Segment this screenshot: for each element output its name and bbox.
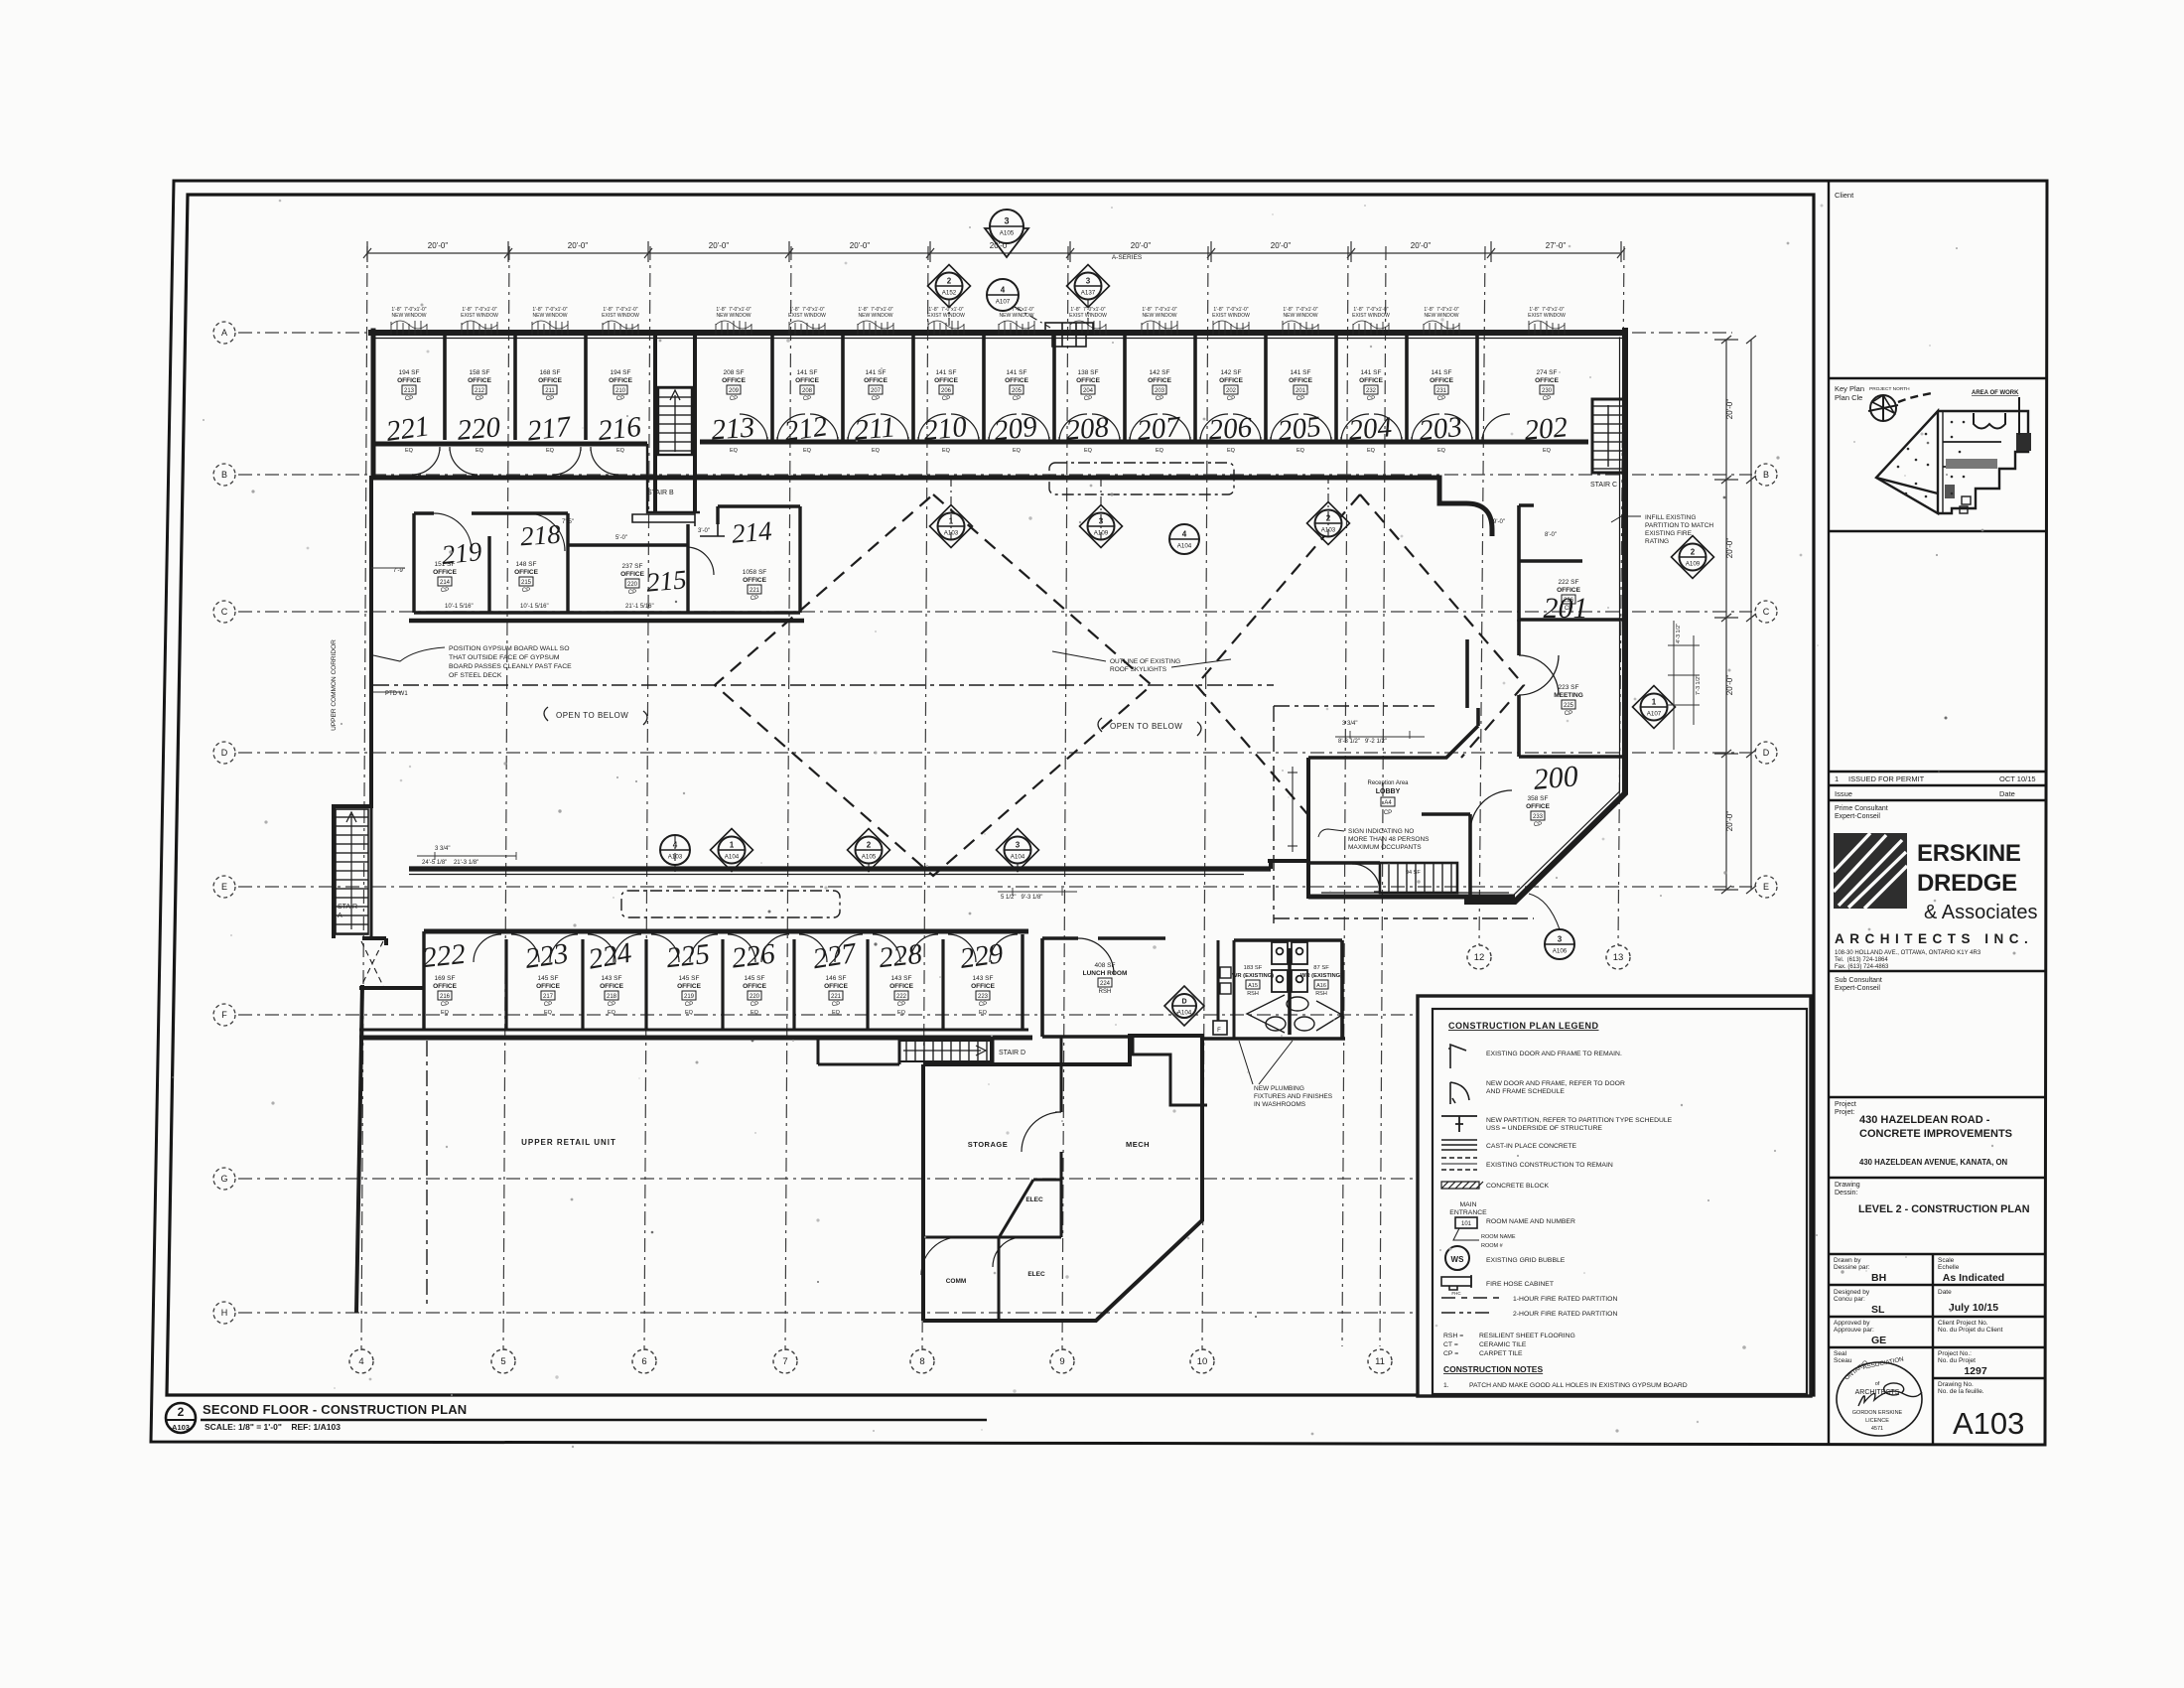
svg-text:OPEN TO BELOW: OPEN TO BELOW [1110,722,1182,731]
svg-text:H: H [221,1308,228,1318]
svg-text:430 HAZELDEAN AVENUE, KANATA,: 430 HAZELDEAN AVENUE, KANATA, ON [1859,1158,2008,1167]
svg-text:EQ: EQ [832,1010,841,1016]
svg-text:220: 220 [627,582,638,588]
svg-text:NEW DOOR AND FRAME, REFER TO D: NEW DOOR AND FRAME, REFER TO DOOR [1486,1080,1625,1087]
svg-text:STAIR: STAIR [338,904,357,911]
svg-text:A107: A107 [1647,711,1662,718]
svg-text:215: 215 [521,580,532,586]
svg-text:CT =: CT = [1443,1341,1458,1348]
svg-text:CP: CP [979,1002,987,1008]
svg-text:EQ: EQ [897,1010,906,1016]
svg-text:OFFICE: OFFICE [743,983,766,990]
svg-text:CP: CP [942,396,950,402]
svg-text:Tel. (613) 724-1864: Tel. (613) 724-1864 [1835,957,1888,963]
svg-text:207: 207 [1136,411,1183,448]
svg-text:20'-0": 20'-0" [850,241,871,250]
svg-text:7: 7 [782,1356,787,1367]
svg-text:CP: CP [1565,711,1572,717]
svg-text:A-SERIES: A-SERIES [1112,254,1143,261]
svg-text:G: G [220,1174,227,1184]
svg-text:CP: CP [476,396,483,402]
svg-text:217: 217 [525,410,574,447]
svg-text:20'-0": 20'-0" [1725,399,1734,420]
svg-text:D: D [1763,748,1770,758]
svg-text:Echelle: Echelle [1938,1264,1960,1271]
svg-text:Seal: Seal [1834,1350,1847,1357]
svg-text:CP: CP [1013,396,1021,402]
svg-text:OFFICE: OFFICE [397,377,421,384]
svg-text:Designed by: Designed by [1834,1289,1870,1296]
svg-text:EQ: EQ [803,448,812,454]
svg-text:NEW WINDOW: NEW WINDOW [1284,313,1318,319]
svg-text:7'-3 1/2": 7'-3 1/2" [1696,675,1702,695]
svg-text:5 1/2" 9'-3 1/8": 5 1/2" 9'-3 1/8" [1001,895,1042,901]
svg-text:218: 218 [519,519,562,552]
svg-text:145 SF: 145 SF [745,975,765,982]
svg-text:CONCRETE BLOCK: CONCRETE BLOCK [1486,1183,1550,1190]
svg-text:141 SF: 141 SF [1007,369,1027,376]
svg-text:142 SF: 142 SF [1150,369,1170,376]
svg-text:A105: A105 [862,854,877,861]
svg-text:OFFICE: OFFICE [609,377,632,384]
svg-text:EXISTING FIRE: EXISTING FIRE [1645,530,1693,537]
svg-text:204: 204 [1083,388,1094,394]
svg-text:CP: CP [441,1002,449,1008]
svg-text:OFFICE: OFFICE [514,569,538,576]
svg-text:208 SF: 208 SF [724,369,745,376]
svg-text:ROOF SKYLIGHTS: ROOF SKYLIGHTS [1110,666,1167,673]
svg-text:145 SF: 145 SF [679,975,700,982]
svg-text:9: 9 [1059,1356,1064,1367]
svg-text:232: 232 [1366,388,1377,394]
svg-text:145 SF: 145 SF [538,975,559,982]
svg-text:ERSKINE: ERSKINE [1917,840,2021,867]
svg-text:CP: CP [546,396,554,402]
svg-text:20'-0": 20'-0" [1271,241,1292,250]
svg-text:A4: A4 [1384,800,1392,806]
svg-text:212: 212 [782,410,830,448]
svg-text:27'-0": 27'-0" [1546,241,1567,250]
svg-text:POSITION GYPSUM BOARD WALL SO: POSITION GYPSUM BOARD WALL SO [449,645,569,652]
svg-text:7'-5": 7'-5" [562,519,574,525]
svg-text:1: 1 [730,841,735,850]
svg-text:203: 203 [1155,388,1165,394]
svg-text:MEETING: MEETING [1554,692,1583,699]
svg-text:216: 216 [597,411,643,447]
svg-text:233: 233 [1533,814,1544,820]
svg-text:No. de la feuille.: No. de la feuille. [1938,1388,1984,1395]
svg-text:LEVEL 2 - CONSTRUCTION PLAN: LEVEL 2 - CONSTRUCTION PLAN [1858,1203,2030,1215]
svg-text:NEW WINDOW: NEW WINDOW [1000,313,1034,319]
svg-text:EQ: EQ [441,1010,450,1016]
svg-text:D: D [1181,999,1186,1006]
svg-text:OFFICE: OFFICE [1535,377,1559,384]
svg-text:UPPER COMMON CORRIDOR: UPPER COMMON CORRIDOR [331,639,338,731]
svg-text:CP: CP [1156,396,1163,402]
svg-text:CP: CP [1227,396,1235,402]
svg-text:146 SF: 146 SF [826,975,847,982]
svg-text:A16: A16 [1316,983,1326,989]
svg-text:158 SF: 158 SF [470,369,490,376]
svg-text:7'-9": 7'-9" [393,568,405,574]
svg-text:3: 3 [1004,216,1009,226]
svg-text:E: E [1763,882,1769,892]
svg-text:Dessine par:: Dessine par: [1834,1264,1870,1271]
svg-text:RSH =: RSH = [1443,1333,1463,1339]
svg-text:221: 221 [384,410,432,448]
svg-text:430 HAZELDEAN ROAD -: 430 HAZELDEAN ROAD - [1859,1114,1990,1126]
svg-text:209: 209 [729,388,740,394]
svg-text:A104: A104 [725,854,740,861]
svg-text:20'-0": 20'-0" [1725,811,1734,832]
svg-text:CONSTRUCTION NOTES: CONSTRUCTION NOTES [1443,1364,1543,1374]
svg-text:STAIR C: STAIR C [1590,482,1617,489]
svg-text:215: 215 [645,564,688,597]
svg-text:NEW WINDOW: NEW WINDOW [717,313,751,319]
svg-text:B: B [221,470,227,480]
svg-text:DREDGE: DREDGE [1917,870,2017,897]
svg-text:CP: CP [1534,822,1542,828]
svg-text:C: C [1763,607,1770,617]
svg-text:210: 210 [615,388,626,394]
svg-text:CAST-IN PLACE CONCRETE: CAST-IN PLACE CONCRETE [1486,1143,1576,1150]
svg-text:5'-0": 5'-0" [615,535,627,541]
svg-text:1.: 1. [1443,1382,1449,1389]
svg-text:CERAMIC TILE: CERAMIC TILE [1479,1341,1527,1348]
svg-text:EQ: EQ [685,1010,694,1016]
svg-text:183 SF: 183 SF [1244,965,1263,971]
svg-text:20'-0": 20'-0" [428,241,449,250]
svg-text:217: 217 [543,994,554,1000]
svg-text:228: 228 [878,938,924,974]
svg-text:3: 3 [1016,841,1021,850]
svg-text:EQ: EQ [1543,448,1552,454]
svg-text:ROOM NAME: ROOM NAME [1481,1234,1516,1240]
svg-text:SL: SL [1871,1304,1885,1316]
svg-text:OFFICE: OFFICE [824,983,848,990]
svg-text:A103: A103 [1953,1406,2024,1441]
svg-text:CARPET TILE: CARPET TILE [1479,1350,1523,1357]
svg-text:141 SF: 141 SF [1291,369,1311,376]
svg-text:EXISTING CONSTRUCTION TO REMAI: EXISTING CONSTRUCTION TO REMAIN [1486,1162,1613,1169]
svg-text:3 3/4": 3 3/4" [1342,721,1357,727]
svg-text:B: B [1763,470,1769,480]
svg-text:148 SF: 148 SF [516,561,537,568]
svg-text:20'-0": 20'-0" [709,241,730,250]
svg-text:CP =: CP = [1443,1350,1458,1357]
svg-text:A106: A106 [1553,948,1568,955]
svg-text:MAIN: MAIN [1460,1201,1477,1208]
svg-text:ASSOCIATION: ASSOCIATION [1862,1355,1904,1371]
svg-text:A109: A109 [1686,561,1701,568]
svg-text:ELEC: ELEC [1025,1196,1043,1203]
svg-text:EQ: EQ [751,1010,759,1016]
svg-text:CP: CP [730,396,738,402]
svg-text:CP: CP [1384,810,1392,816]
svg-text:ROOM #: ROOM # [1481,1243,1504,1249]
svg-text:222: 222 [421,938,468,974]
svg-text:11: 11 [1375,1356,1385,1367]
svg-text:Project No.:: Project No.: [1938,1350,1972,1357]
svg-text:A107: A107 [996,299,1011,306]
svg-text:Plan Cle: Plan Cle [1835,393,1862,402]
svg-text:222 SF: 222 SF [1559,579,1579,586]
svg-text:205: 205 [1276,411,1322,448]
svg-text:EQ: EQ [544,1010,553,1016]
svg-text:EQ: EQ [872,448,881,454]
svg-text:12: 12 [1474,952,1485,963]
svg-text:EQ: EQ [1437,448,1446,454]
svg-text:Issue: Issue [1835,789,1852,798]
svg-text:EXIST WINDOW: EXIST WINDOW [461,313,498,319]
svg-text:OFFICE: OFFICE [677,983,701,990]
svg-text:WR (EXISTING): WR (EXISTING) [1232,973,1274,979]
svg-text:Scale: Scale [1938,1257,1955,1264]
svg-text:211: 211 [853,411,896,446]
svg-text:CP: CP [897,1002,905,1008]
svg-text:218: 218 [607,994,617,1000]
svg-text:13: 13 [1613,952,1624,963]
svg-text:of: of [1875,1381,1880,1387]
svg-text:CP: CP [441,588,449,594]
svg-text:NEW WINDOW: NEW WINDOW [859,313,893,319]
svg-text:WS: WS [1451,1255,1465,1264]
svg-text:EQ: EQ [608,1010,616,1016]
svg-text:Sub Consultant: Sub Consultant [1835,977,1882,984]
svg-text:3: 3 [1086,277,1091,286]
svg-text:RSH: RSH [1315,991,1327,997]
svg-text:ISSUED FOR PERMIT: ISSUED FOR PERMIT [1848,774,1925,783]
svg-text:211: 211 [545,388,555,394]
svg-text:20'-0": 20'-0" [1725,538,1734,559]
svg-text:NEW WINDOW: NEW WINDOW [392,313,427,319]
svg-text:202: 202 [1226,388,1237,394]
svg-text:F: F [221,1010,227,1020]
svg-text:STORAGE: STORAGE [968,1140,1008,1149]
svg-text:2: 2 [178,1405,185,1419]
svg-text:A105: A105 [1000,230,1015,237]
svg-text:Client: Client [1835,191,1854,200]
svg-text:21'-1 5/16": 21'-1 5/16" [625,604,654,610]
svg-text:Projet:: Projet: [1835,1109,1854,1116]
svg-text:10'-1 5/16": 10'-1 5/16" [445,604,474,610]
svg-text:STAIR B: STAIR B [647,490,674,496]
svg-text:CP: CP [685,1002,693,1008]
svg-text:2: 2 [947,277,952,286]
svg-text:1058 SF: 1058 SF [743,569,767,576]
svg-text:201: 201 [1296,388,1306,394]
svg-text:CP: CP [832,1002,840,1008]
svg-text:Fax. (613) 724-4863: Fax. (613) 724-4863 [1835,964,1889,970]
svg-text:CONSTRUCTION PLAN LEGEND: CONSTRUCTION PLAN LEGEND [1448,1021,1599,1031]
svg-text:220: 220 [456,411,502,447]
svg-text:237 SF: 237 SF [622,563,643,570]
svg-text:194 SF: 194 SF [611,369,631,376]
svg-text:143 SF: 143 SF [973,975,994,982]
svg-text:GE: GE [1871,1335,1886,1346]
svg-text:Expert-Conseil: Expert-Conseil [1835,985,1880,992]
svg-text:D: D [221,748,228,758]
svg-text:101: 101 [1461,1221,1472,1227]
svg-text:202: 202 [1523,411,1569,447]
svg-text:INFILL EXISTING: INFILL EXISTING [1645,514,1696,521]
svg-text:141 SF: 141 SF [1361,369,1382,376]
svg-text:OCT 10/15: OCT 10/15 [1999,774,2036,783]
svg-text:4: 4 [1182,530,1187,539]
svg-text:A: A [338,913,342,919]
svg-text:EXIST WINDOW: EXIST WINDOW [1212,313,1250,319]
svg-text:2: 2 [1691,548,1696,557]
svg-text:OFFICE: OFFICE [1526,803,1550,810]
svg-text:3 3/4": 3 3/4" [435,846,450,852]
svg-text:& Associates: & Associates [1924,902,2038,923]
svg-text:CP: CP [1084,396,1092,402]
svg-text:207: 207 [871,388,882,394]
svg-text:Reception Area: Reception Area [1367,780,1409,786]
svg-text:10: 10 [1197,1356,1208,1367]
svg-text:Client Project No.: Client Project No. [1938,1320,1988,1327]
svg-text:142 SF: 142 SF [1221,369,1242,376]
svg-text:STAIR D: STAIR D [999,1050,1025,1056]
svg-text:214: 214 [731,515,773,548]
svg-text:A137: A137 [1081,290,1096,297]
svg-text:194 SF: 194 SF [399,369,420,376]
svg-text:MECH: MECH [1126,1140,1150,1149]
svg-text:RATING: RATING [1645,538,1669,545]
svg-text:213: 213 [404,388,415,394]
svg-text:8'-0": 8'-0" [1545,532,1557,538]
svg-text:OFFICE: OFFICE [1359,377,1383,384]
svg-text:CP: CP [1437,396,1445,402]
svg-text:141 SF: 141 SF [1432,369,1452,376]
svg-text:Date: Date [1999,789,2015,798]
svg-text:NEW PARTITION, REFER TO PARTIT: NEW PARTITION, REFER TO PARTITION TYPE S… [1486,1117,1673,1124]
svg-text:A: A [221,328,227,338]
svg-text:ROOM NAME AND NUMBER: ROOM NAME AND NUMBER [1486,1218,1575,1225]
svg-text:EXISTING GRID BUBBLE: EXISTING GRID BUBBLE [1486,1257,1566,1264]
svg-text:SIGN INDICATING NO: SIGN INDICATING NO [1348,828,1414,835]
svg-text:CONCRETE IMPROVEMENTS: CONCRETE IMPROVEMENTS [1859,1128,2012,1140]
svg-text:SECOND FLOOR - CONSTRUCTION PL: SECOND FLOOR - CONSTRUCTION PLAN [203,1402,467,1417]
svg-text:OFFICE: OFFICE [1076,377,1100,384]
svg-text:Project: Project [1835,1101,1856,1108]
svg-text:Dessin:: Dessin: [1835,1190,1857,1196]
svg-text:CP: CP [405,396,413,402]
svg-text:OFFICE: OFFICE [600,983,623,990]
svg-text:OFFICE: OFFICE [1219,377,1243,384]
svg-text:COMM: COMM [946,1278,967,1285]
svg-text:OFFICE: OFFICE [433,569,457,576]
svg-text:CP: CP [751,596,758,602]
svg-text:E: E [221,882,227,892]
svg-text:AREA OF WORK: AREA OF WORK [1972,390,2019,396]
svg-text:216: 216 [440,994,451,1000]
svg-text:Drawn by: Drawn by [1834,1257,1861,1264]
svg-text:BOARD PASSES CLEANLY PAST FACE: BOARD PASSES CLEANLY PAST FACE [449,663,572,670]
svg-text:141 SF: 141 SF [797,369,818,376]
svg-text:SCALE: 1/8" = 1'-0" REF: 1: SCALE: 1/8" = 1'-0" REF: 1/A103 [205,1422,341,1432]
svg-text:Date: Date [1938,1289,1952,1296]
svg-text:229: 229 [958,937,1006,975]
svg-text:2: 2 [867,841,872,850]
svg-text:230: 230 [1542,388,1553,394]
svg-text:EXIST WINDOW: EXIST WINDOW [1528,313,1566,319]
svg-text:OFFICE: OFFICE [468,377,491,384]
svg-text:EQ: EQ [546,448,555,454]
svg-text:EQ: EQ [979,1010,988,1016]
svg-text:94 SF: 94 SF [1406,870,1421,876]
svg-text:226: 226 [730,937,777,974]
svg-text:4: 4 [1001,286,1006,295]
svg-text:OFFICE: OFFICE [795,377,819,384]
svg-text:A15: A15 [1248,983,1258,989]
svg-text:UPPER RETAIL UNIT: UPPER RETAIL UNIT [521,1138,616,1147]
svg-text:No. du Projet: No. du Projet [1938,1357,1976,1364]
svg-text:205: 205 [1012,388,1023,394]
svg-text:MORE THAN 48 PERSONS: MORE THAN 48 PERSONS [1348,836,1430,843]
svg-text:CP: CP [1543,396,1551,402]
svg-text:CP: CP [872,396,880,402]
svg-text:4'-3 1/2": 4'-3 1/2" [1676,624,1682,643]
svg-text:EXISTING DOOR AND FRAME TO REM: EXISTING DOOR AND FRAME TO REMAIN. [1486,1051,1622,1057]
svg-text:CP: CP [803,396,811,402]
svg-text:1-HOUR FIRE RATED PARTITION: 1-HOUR FIRE RATED PARTITION [1513,1296,1617,1303]
svg-text:Sceau: Sceau [1834,1357,1852,1364]
svg-text:221: 221 [750,588,760,594]
svg-text:C: C [221,607,228,617]
svg-text:CP: CP [751,1002,758,1008]
svg-text:Drawing No.: Drawing No. [1938,1381,1974,1388]
svg-text:EXIST WINDOW: EXIST WINDOW [1352,313,1390,319]
svg-text:3'-0": 3'-0" [698,528,710,534]
svg-text:EQ: EQ [942,448,951,454]
svg-text:OFFICE: OFFICE [538,377,562,384]
svg-text:GORDON ERSKINE: GORDON ERSKINE [1852,1410,1903,1416]
svg-text:EQ: EQ [1013,448,1022,454]
svg-text:NEW WINDOW: NEW WINDOW [1425,313,1459,319]
svg-text:A152: A152 [942,290,957,297]
svg-text:RSH: RSH [1247,991,1259,997]
svg-text:A104: A104 [1177,1010,1192,1017]
svg-text:OFFICE: OFFICE [971,983,995,990]
svg-text:206: 206 [941,388,952,394]
svg-text:224: 224 [586,937,633,976]
svg-text:143 SF: 143 SF [891,975,912,982]
svg-text:Approuve par:: Approuve par: [1834,1327,1874,1334]
svg-text:6: 6 [641,1356,646,1367]
svg-text:10'-1 5/16": 10'-1 5/16" [520,604,549,610]
svg-text:EQ: EQ [1084,448,1093,454]
svg-text:As Indicated: As Indicated [1943,1272,2004,1284]
svg-text:1: 1 [1835,774,1839,783]
svg-text:RSH: RSH [1099,989,1112,995]
svg-text:OFFICE: OFFICE [722,377,746,384]
svg-text:358 SF: 358 SF [1528,795,1549,802]
svg-text:274 SF: 274 SF [1537,369,1558,376]
svg-text:Key Plan: Key Plan [1835,384,1864,393]
svg-text:CP: CP [628,590,636,596]
svg-text:8'-3 1/2" 9'-2 1/2": 8'-3 1/2" 9'-2 1/2" [1338,739,1387,745]
svg-text:OFFICE: OFFICE [536,983,560,990]
svg-text:FIRE HOSE CABINET: FIRE HOSE CABINET [1486,1281,1554,1288]
svg-text:223: 223 [523,937,571,975]
svg-text:225: 225 [665,938,712,974]
svg-text:EQ: EQ [405,448,414,454]
svg-text:Expert-Conseil: Expert-Conseil [1835,813,1880,820]
svg-text:OFFICE: OFFICE [433,983,457,990]
svg-text:1297: 1297 [1964,1365,1987,1377]
svg-text:220: 220 [750,994,760,1000]
